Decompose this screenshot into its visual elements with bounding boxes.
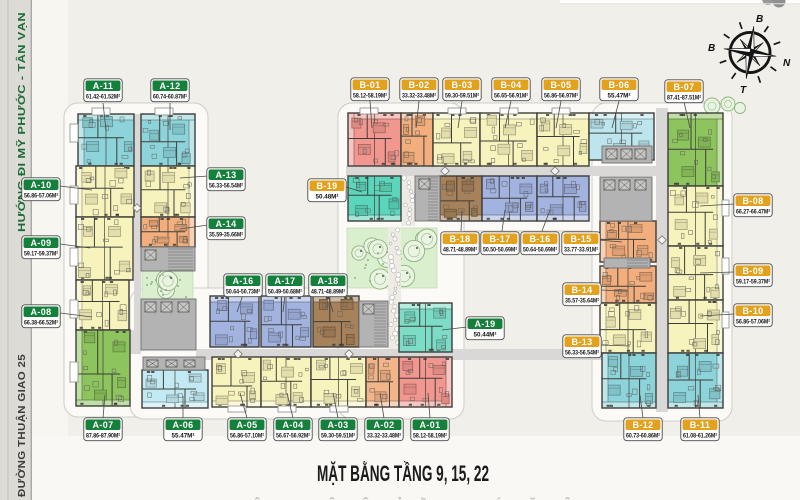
- svg-text:56.86-57.06M²: 56.86-57.06M²: [736, 319, 770, 326]
- svg-text:B-07: B-07: [673, 82, 694, 92]
- svg-text:B-12: B-12: [632, 420, 653, 430]
- svg-text:B-08: B-08: [742, 196, 763, 206]
- svg-text:B-15: B-15: [570, 234, 591, 244]
- svg-text:61.08-61.26M²: 61.08-61.26M²: [683, 433, 717, 440]
- svg-text:N: N: [783, 58, 791, 69]
- svg-text:56.67-56.92M²: 56.67-56.92M²: [276, 433, 310, 440]
- svg-text:35.59-35.66M²: 35.59-35.66M²: [209, 232, 243, 239]
- svg-text:61.42-61.52M²: 61.42-61.52M²: [86, 94, 120, 101]
- svg-text:66.27-66.47M²: 66.27-66.47M²: [736, 209, 770, 216]
- svg-text:B-05: B-05: [550, 80, 571, 90]
- svg-text:55.47M²: 55.47M²: [608, 93, 631, 100]
- svg-text:56.33-56.54M²: 56.33-56.54M²: [209, 183, 243, 190]
- svg-text:87.86-87.90M²: 87.86-87.90M²: [86, 433, 120, 440]
- svg-text:48.71-48.89M²: 48.71-48.89M²: [443, 247, 477, 254]
- svg-text:MẶT BẰNG TẦNG 9, 15, 22: MẶT BẰNG TẦNG 9, 15, 22: [317, 461, 489, 486]
- svg-text:56.86-57.10M²: 56.86-57.10M²: [230, 433, 264, 440]
- svg-text:A-08: A-08: [30, 307, 51, 317]
- svg-text:A-10: A-10: [30, 180, 51, 190]
- svg-text:A-07: A-07: [92, 420, 113, 430]
- svg-text:A-12: A-12: [159, 81, 180, 91]
- svg-text:B-17: B-17: [489, 234, 510, 244]
- svg-text:A-01: A-01: [419, 420, 440, 430]
- svg-text:B: B: [756, 14, 763, 25]
- svg-text:B-04: B-04: [500, 80, 521, 90]
- svg-text:A-16: A-16: [232, 276, 253, 286]
- svg-text:50.64-50.73M²: 50.64-50.73M²: [226, 289, 260, 296]
- svg-text:A-02: A-02: [373, 420, 394, 430]
- svg-text:A-09: A-09: [30, 238, 51, 248]
- svg-text:66.38-66.52M²: 66.38-66.52M²: [24, 320, 58, 327]
- svg-text:55.47M²: 55.47M²: [172, 433, 195, 440]
- svg-text:B-01: B-01: [359, 80, 380, 90]
- svg-text:56.65-56.91M²: 56.65-56.91M²: [494, 93, 528, 100]
- svg-text:35.57-35.64M²: 35.57-35.64M²: [565, 298, 599, 305]
- svg-text:50.64-50.69M²: 50.64-50.69M²: [523, 247, 557, 254]
- svg-text:B-11: B-11: [690, 420, 711, 430]
- svg-text:59.30-59.51M²: 59.30-59.51M²: [321, 433, 355, 440]
- svg-text:T: T: [740, 85, 747, 96]
- svg-text:B-10: B-10: [742, 306, 763, 316]
- svg-text:50.49-50.68M²: 50.49-50.68M²: [268, 289, 302, 296]
- svg-text:A-05: A-05: [236, 420, 257, 430]
- svg-text:A-17: A-17: [274, 276, 295, 286]
- svg-text:60.73-60.86M²: 60.73-60.86M²: [626, 433, 660, 440]
- svg-text:60.74-60.87M²: 60.74-60.87M²: [153, 94, 187, 101]
- svg-text:B-13: B-13: [571, 337, 592, 347]
- svg-text:B-18: B-18: [449, 234, 470, 244]
- svg-text:59.30-59.51M²: 59.30-59.51M²: [445, 93, 479, 100]
- svg-text:59.17-59.37M²: 59.17-59.37M²: [736, 279, 770, 286]
- svg-text:58.12-58.19M²: 58.12-58.19M²: [413, 433, 447, 440]
- svg-text:ĐƯỜNG THUẬN GIAO 25: ĐƯỜNG THUẬN GIAO 25: [15, 354, 28, 497]
- svg-text:50.48M²: 50.48M²: [316, 194, 339, 201]
- svg-text:87.41-87.51M²: 87.41-87.51M²: [667, 95, 701, 102]
- svg-text:A-06: A-06: [172, 420, 193, 430]
- svg-text:33.32-33.48M²: 33.32-33.48M²: [367, 433, 401, 440]
- svg-text:B-09: B-09: [742, 266, 763, 276]
- svg-text:B-19: B-19: [316, 181, 337, 191]
- svg-text:A-04: A-04: [282, 420, 303, 430]
- svg-text:59.17-59.37M²: 59.17-59.37M²: [24, 251, 58, 258]
- svg-text:50.50-50.69M²: 50.50-50.69M²: [483, 247, 517, 254]
- svg-text:56.33-56.54M²: 56.33-56.54M²: [565, 350, 599, 357]
- svg-text:B: B: [708, 43, 715, 54]
- svg-text:B-06: B-06: [608, 80, 629, 90]
- svg-text:B-02: B-02: [408, 80, 429, 90]
- svg-text:56.86-56.97M²: 56.86-56.97M²: [544, 93, 578, 100]
- svg-text:58.12-58.19M²: 58.12-58.19M²: [353, 93, 387, 100]
- svg-text:33.32-33.48M²: 33.32-33.48M²: [402, 93, 436, 100]
- svg-text:B-14: B-14: [571, 285, 592, 295]
- svg-text:A-19: A-19: [474, 319, 495, 329]
- svg-text:A-13: A-13: [215, 170, 236, 180]
- svg-text:48.71-48.89M²: 48.71-48.89M²: [311, 289, 345, 296]
- svg-text:B-03: B-03: [451, 80, 472, 90]
- svg-text:A-14: A-14: [215, 219, 236, 229]
- svg-text:B-16: B-16: [529, 234, 550, 244]
- svg-text:A-03: A-03: [327, 420, 348, 430]
- svg-text:50.44M²: 50.44M²: [474, 332, 497, 339]
- svg-text:A-11: A-11: [93, 81, 114, 91]
- svg-text:56.86-57.06M²: 56.86-57.06M²: [24, 193, 58, 200]
- svg-text:33.77-33.91M²: 33.77-33.91M²: [564, 247, 598, 254]
- svg-text:A-18: A-18: [317, 276, 338, 286]
